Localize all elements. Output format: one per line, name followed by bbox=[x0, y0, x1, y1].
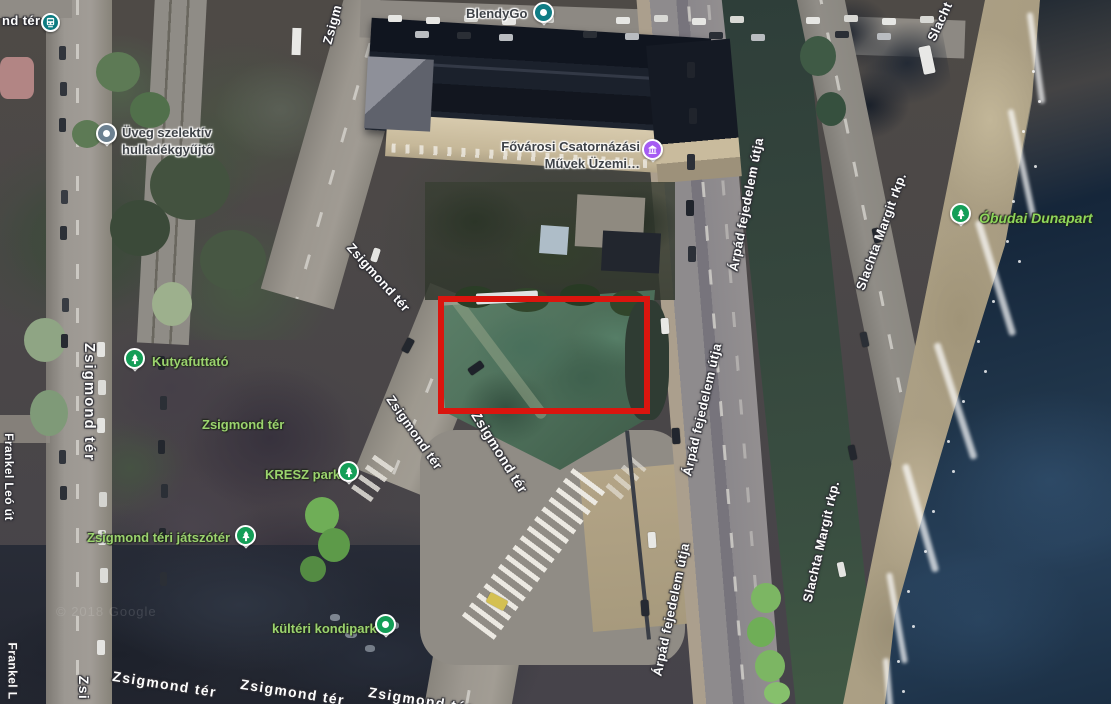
tram-glyph bbox=[45, 17, 56, 28]
poi-label-obudai-dunapart[interactable]: Óbudai Dunapart bbox=[979, 210, 1093, 226]
parked-cars-column bbox=[687, 62, 695, 78]
tree-pin-icon bbox=[124, 348, 145, 369]
tree bbox=[747, 617, 775, 647]
poi-label-jatszoter[interactable]: Zsigmond téri játszótér bbox=[87, 530, 230, 545]
courtyard-dark-roof bbox=[601, 231, 661, 274]
kondipark-equipment bbox=[330, 614, 340, 621]
car bbox=[640, 600, 649, 617]
poi-label-uveg[interactable]: Üveg szelektív hulladékgyűjtő bbox=[122, 124, 214, 158]
parked-cars-row bbox=[388, 15, 402, 22]
imagery-watermark: © 2018 Google bbox=[56, 604, 157, 619]
tree bbox=[800, 36, 836, 76]
poi-label-kondipark[interactable]: kültéri kondipark bbox=[272, 621, 377, 636]
tree-glyph bbox=[343, 466, 355, 478]
dot-pin-icon bbox=[533, 2, 554, 23]
tree bbox=[96, 52, 140, 92]
jatszoter-pin[interactable] bbox=[235, 525, 257, 553]
annotation-rectangle bbox=[438, 296, 650, 414]
tree bbox=[152, 282, 192, 326]
tree bbox=[24, 318, 66, 362]
poi-label-kutyafuttato[interactable]: Kutyafuttató bbox=[152, 354, 229, 369]
water-speckles bbox=[1032, 70, 1035, 73]
tree-kresz-bush bbox=[318, 528, 350, 562]
tree bbox=[110, 200, 170, 256]
blendygo-pin[interactable] bbox=[533, 2, 555, 30]
poi-label-kresz-park[interactable]: KRESZ park bbox=[265, 467, 340, 482]
building-pink-roof bbox=[0, 57, 34, 99]
tree bbox=[751, 583, 781, 613]
tram-icon[interactable] bbox=[41, 13, 60, 32]
kondipark-equipment bbox=[365, 645, 375, 652]
road-label-zsigmond-vertical-cut: Zsi bbox=[76, 676, 92, 700]
road-label-nd-ter: nd tér bbox=[2, 13, 41, 28]
poi-label-line2: hulladékgyűjtő bbox=[122, 141, 214, 158]
poi-label-line1: Üveg szelektív bbox=[122, 124, 214, 141]
museum-pin-icon bbox=[642, 139, 663, 160]
tree bbox=[764, 682, 790, 704]
fovarosi-museum-pin[interactable] bbox=[642, 139, 664, 167]
tree bbox=[30, 390, 68, 436]
car bbox=[671, 428, 680, 445]
poi-label-blendygo[interactable]: BlendyGo bbox=[466, 6, 527, 21]
kondipark-pin[interactable] bbox=[375, 614, 397, 642]
tree bbox=[130, 92, 170, 128]
dot-pin-icon bbox=[375, 614, 396, 635]
building-fence-white bbox=[292, 28, 302, 55]
tree-pin-icon bbox=[338, 461, 359, 482]
tree-glyph bbox=[240, 530, 252, 542]
building-small-house bbox=[364, 56, 434, 131]
tree-pin-icon bbox=[950, 203, 971, 224]
tree bbox=[816, 92, 846, 126]
road-label-zsigmond-vertical: Zsigmond tér bbox=[81, 343, 98, 462]
kutyafuttato-pin[interactable] bbox=[124, 348, 146, 376]
tree-pin-icon bbox=[235, 525, 256, 546]
tree-kresz-bush bbox=[300, 556, 326, 582]
poi-label-fovarosi[interactable]: Fővárosi Csatornázási Művek Üzemi… bbox=[494, 138, 640, 172]
kresz-park-pin[interactable] bbox=[338, 461, 360, 489]
road-label-frankel-leo: Frankel Leó út bbox=[2, 433, 16, 521]
courtyard-glasshouse bbox=[539, 225, 569, 255]
poi-label-line1: Fővárosi Csatornázási bbox=[494, 138, 640, 155]
dot-pin-icon bbox=[96, 123, 117, 144]
road-label-frankel-cut: Frankel L bbox=[5, 643, 19, 700]
road-label-text: Zsigmond tér bbox=[81, 343, 98, 462]
glass-recycling-pin[interactable] bbox=[96, 123, 118, 151]
parked-cars-column bbox=[97, 342, 105, 357]
map-canvas[interactable]: nd tér Zsigm Zsigmond tér Zsigmond tér Z… bbox=[0, 0, 1111, 704]
parked-cars-column bbox=[59, 46, 66, 60]
tree-glyph bbox=[955, 208, 967, 220]
poi-label-zsigmond-ter-park[interactable]: Zsigmond tér bbox=[202, 417, 284, 432]
tree bbox=[200, 230, 266, 290]
car bbox=[660, 318, 669, 335]
tree bbox=[755, 650, 785, 682]
car bbox=[647, 532, 656, 549]
obudai-dunapart-pin[interactable] bbox=[950, 203, 972, 231]
tree-glyph bbox=[129, 353, 141, 365]
poi-label-line2: Művek Üzemi… bbox=[494, 155, 640, 172]
museum-glyph bbox=[647, 144, 658, 155]
parked-cars-row bbox=[415, 31, 429, 38]
